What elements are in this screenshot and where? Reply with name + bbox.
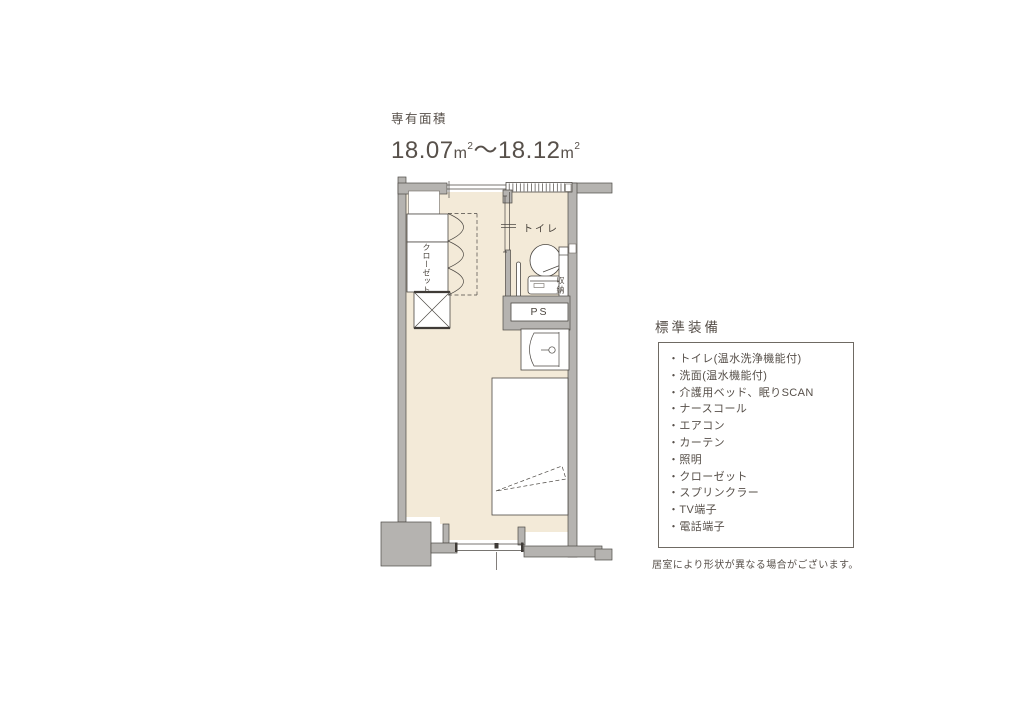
equipment-item-label: クローゼット [679, 471, 747, 483]
floorplan [374, 172, 614, 576]
equipment-item-label: カーテン [679, 437, 725, 449]
shutter-band [506, 183, 572, 193]
toilet-label: トイレ [521, 220, 561, 235]
closet-label: クローゼット [421, 243, 432, 295]
bullet: ・ [668, 471, 679, 483]
area-value-from: 18.07 [391, 137, 454, 164]
equipment-item-label: ナースコール [679, 403, 747, 415]
bullet: ・ [668, 353, 679, 365]
equipment-item-label: 洗面(温水機能付) [679, 370, 767, 382]
washbasin [521, 329, 569, 370]
bullet: ・ [668, 521, 679, 533]
bullet: ・ [668, 420, 679, 432]
area-unit2: m [561, 145, 575, 162]
equipment-item: ・照明 [668, 452, 853, 469]
equipment-item: ・クローゼット [668, 469, 853, 486]
bullet: ・ [668, 370, 679, 382]
window [455, 543, 524, 571]
equipment-item: ・介護用ベッド、眠りSCAN [668, 385, 853, 402]
bullet: ・ [668, 454, 679, 466]
bullet: ・ [668, 504, 679, 516]
equipment-item-label: 照明 [679, 454, 702, 466]
equipment-item: ・スプリンクラー [668, 485, 853, 502]
area-value-to: 18.12 [498, 137, 561, 164]
bottom-wall [524, 546, 612, 560]
equipment-list: ・トイレ(温水洗浄機能付) ・洗面(温水機能付) ・介護用ベッド、眠りSCAN … [668, 351, 853, 536]
bullet: ・ [668, 437, 679, 449]
area-separator: 〜 [473, 137, 498, 164]
page: { "title": { "label": "専有面積", "value_fro… [0, 0, 1024, 724]
area-unit-sup2: 2 [574, 141, 580, 152]
equipment-item: ・洗面(温水機能付) [668, 368, 853, 385]
area-unit: m [454, 145, 468, 162]
equipment-item-label: 介護用ベッド、眠りSCAN [679, 387, 813, 399]
equipment-item: ・エアコン [668, 418, 853, 435]
storage-label: 収納 [555, 276, 566, 306]
equipment-item-label: TV端子 [679, 504, 717, 516]
equipment-item: ・トイレ(温水洗浄機能付) [668, 351, 853, 368]
area-title-label: 専有面積 [391, 108, 580, 127]
bullet: ・ [668, 403, 679, 415]
bed [492, 378, 568, 515]
equipment-note: 居室により形状が異なる場合がございます。 [652, 556, 859, 571]
equipment-item-label: スプリンクラー [679, 487, 759, 499]
equipment-heading: 標準装備 [655, 316, 721, 336]
equipment-box: ・トイレ(温水洗浄機能付) ・洗面(温水機能付) ・介護用ベッド、眠りSCAN … [658, 342, 854, 548]
area-title: 専有面積 18.07m2〜18.12m2 [391, 108, 580, 165]
crossed-duct-box [414, 292, 450, 328]
equipment-item-label: エアコン [679, 420, 725, 432]
bullet: ・ [668, 487, 679, 499]
equipment-item-label: 電話端子 [679, 521, 725, 533]
equipment-item-label: トイレ(温水洗浄機能付) [679, 353, 801, 365]
equipment-item: ・カーテン [668, 435, 853, 452]
pipe-space-label: PS [511, 306, 568, 318]
equipment-item: ・ナースコール [668, 401, 853, 418]
bullet: ・ [668, 387, 679, 399]
area-value: 18.07m2〜18.12m2 [391, 130, 580, 165]
equipment-item: ・TV端子 [668, 502, 853, 519]
equipment-item: ・電話端子 [668, 519, 853, 536]
